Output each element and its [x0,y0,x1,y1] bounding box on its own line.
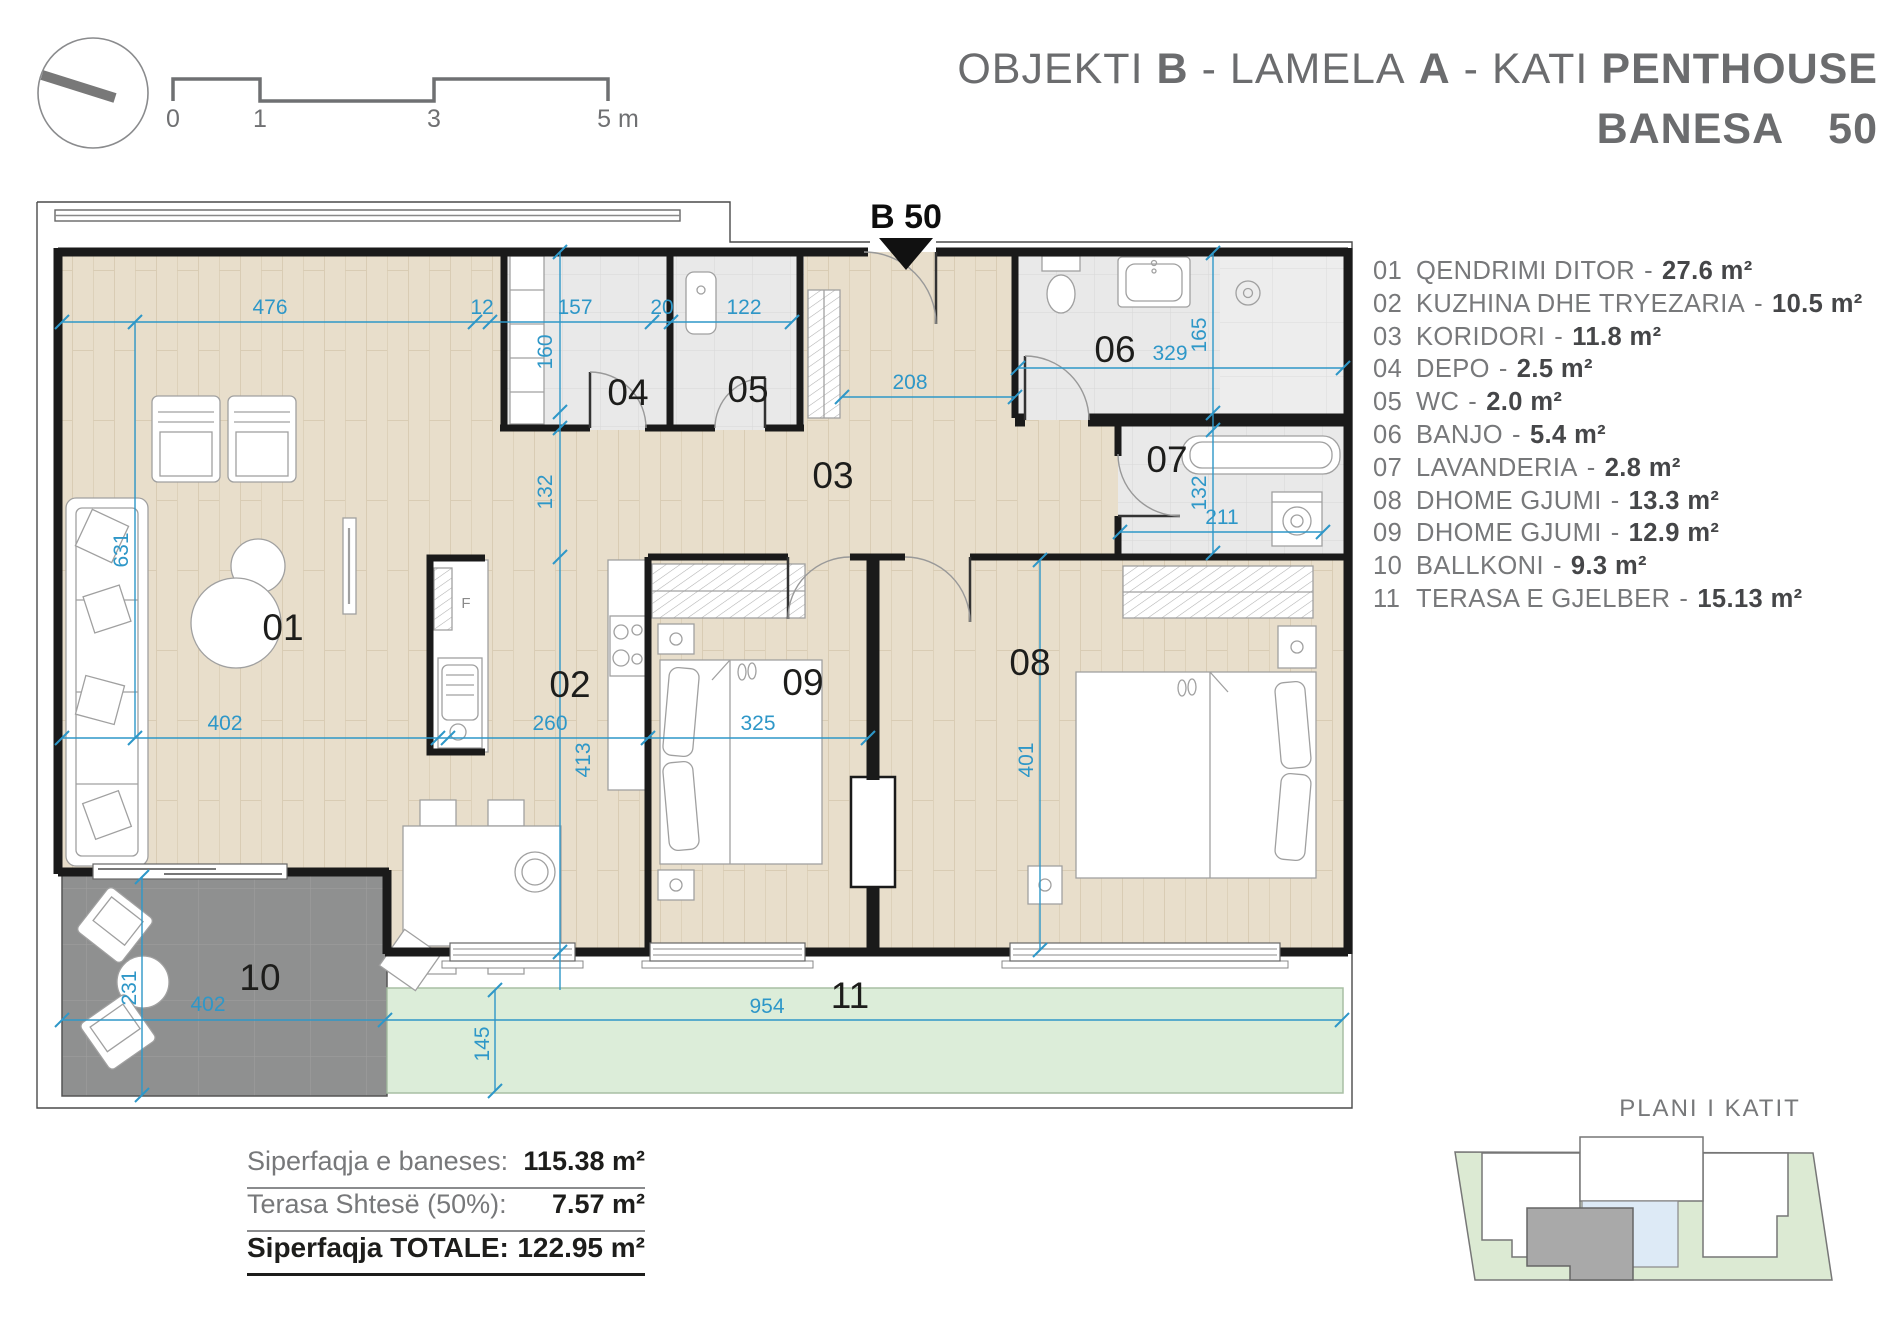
kitchen-window [442,943,583,968]
legend-item-10: 10BALLKONI-9.3 m² [1373,552,1863,585]
title-word: KATI [1492,40,1588,98]
legend-name: KORIDORI [1416,323,1545,352]
legend-sep: - [1553,552,1562,581]
total-label: Terasa Shtesë (50%): [247,1189,507,1220]
legend-area: 13.3 m² [1629,487,1720,516]
dim-132-corridor: 132 [534,474,557,509]
entrance-marker-label: B 50 [870,198,942,236]
legend-name: KUZHINA DHE TRYEZARIA [1416,290,1745,319]
kitchen-unit [430,558,488,752]
dim-402-living: 402 [207,712,242,735]
dim-631: 631 [110,532,133,567]
total-value: 122.95 m² [517,1232,645,1264]
armchair [228,396,296,482]
legend-num: 06 [1373,421,1416,450]
shower-tile-floor [1220,252,1348,420]
legend-name: DEPO [1416,355,1490,384]
unit-number: 50 [1828,100,1878,158]
legend-num: 02 [1373,290,1416,319]
dim-160: 160 [534,334,557,369]
legend-num: 10 [1373,552,1416,581]
legend-num: 05 [1373,388,1416,417]
bedroom08-window [1002,943,1288,968]
wardrobe [652,564,805,618]
legend-item-09: 09DHOME GJUMI-12.9 m² [1373,519,1863,552]
legend-sep: - [1468,388,1477,417]
room-label-10: 10 [239,957,280,998]
total-label: Siperfaqja TOTALE: [247,1232,509,1264]
dim-165: 165 [1188,317,1211,352]
area-totals: Siperfaqja e baneses: 115.38 m² Terasa S… [247,1146,645,1276]
legend-name: WC [1416,388,1459,417]
nightstand [658,870,694,900]
legend-area: 2.0 m² [1486,388,1562,417]
legend-area: 9.3 m² [1571,552,1647,581]
room-label-07: 07 [1146,439,1187,480]
legend-sep: - [1611,519,1620,548]
fridge-label: F [461,595,470,612]
tv-board [343,518,356,614]
legend-sep: - [1644,257,1653,286]
key-plan-building-right [1703,1153,1788,1257]
title-word-bold: A [1419,40,1451,98]
dim-145: 145 [471,1026,494,1061]
scale-bar: 0 1 3 5 m [150,55,670,135]
key-plan-building-top [1580,1137,1703,1201]
legend-name: BANJO [1416,421,1503,450]
dim-329: 329 [1152,342,1187,365]
legend-area: 12.9 m² [1629,519,1720,548]
armchair [152,396,220,482]
scale-label-5m: 5 m [597,105,639,133]
dim-12: 12 [470,296,493,319]
legend-num: 07 [1373,454,1416,483]
entry-closet [808,290,840,418]
legend-sep: - [1754,290,1763,319]
bed [1076,672,1316,878]
dim-401: 401 [1015,742,1038,777]
dim-211: 211 [1205,506,1238,529]
legend-name: QENDRIMI DITOR [1416,257,1635,286]
legend-item-05: 05WC-2.0 m² [1373,388,1863,421]
legend-item-03: 03KORIDORI-11.8 m² [1373,323,1863,356]
dim-20: 20 [650,296,673,319]
unit-label: BANESA [1597,100,1785,158]
dim-954: 954 [749,995,784,1018]
room-label-01: 01 [262,607,303,648]
stove-counter [608,560,648,790]
legend-num: 09 [1373,519,1416,548]
legend-name: LAVANDERIA [1416,454,1578,483]
room-label-11: 11 [831,975,869,1016]
scale-label-1: 1 [253,105,267,133]
dim-402-balcony: 402 [190,993,225,1016]
legend-area: 11.8 m² [1572,323,1661,352]
drawing-title: OBJEKTI B - LAMELA A - KATI PENTHOUSE BA… [957,40,1878,158]
nightstand [1028,866,1062,904]
room-label-08: 08 [1009,642,1050,683]
legend-area: 27.6 m² [1662,257,1753,286]
legend-area: 2.8 m² [1605,454,1681,483]
key-plan-drawing [1440,1128,1860,1298]
legend-num: 08 [1373,487,1416,516]
dim-476: 476 [252,296,287,319]
dim-231: 231 [118,970,141,1005]
legend-item-11: 11TERASA E GJELBER-15.13 m² [1373,585,1863,618]
legend-item-02: 02KUZHINA DHE TRYEZARIA-10.5 m² [1373,290,1863,323]
title-dash: - [1202,40,1217,98]
legend-item-07: 07LAVANDERIA-2.8 m² [1373,454,1863,487]
room-label-06: 06 [1094,329,1135,370]
title-word: LAMELA [1230,40,1406,98]
dim-157: 157 [557,296,592,319]
legend-name: BALLKONI [1416,552,1544,581]
legend-num: 11 [1373,585,1416,614]
total-row-grand: Siperfaqja TOTALE: 122.95 m² [247,1232,645,1276]
dim-325: 325 [740,712,775,735]
total-row-apartment: Siperfaqja e baneses: 115.38 m² [247,1146,645,1189]
room-label-02: 02 [549,664,590,705]
legend-item-06: 06BANJO-5.4 m² [1373,421,1863,454]
washing-machine [1272,492,1322,546]
legend-area: 15.13 m² [1697,585,1802,614]
nightstand [658,624,694,654]
title-word-bold: B [1157,40,1189,98]
legend-sep: - [1512,421,1521,450]
floor-plan-drawing: 476 12 157 20 122 160 132 208 329 165 13… [30,160,1360,1120]
title-line-2: BANESA 50 [957,100,1878,158]
legend-name: DHOME GJUMI [1416,487,1602,516]
floor-plan-page: 0 1 3 5 m OBJEKTI B - LAMELA A - KATI PE… [0,0,1900,1343]
room-legend: 01QENDRIMI DITOR-27.6 m² 02KUZHINA DHE T… [1373,257,1863,618]
legend-area: 5.4 m² [1530,421,1606,450]
legend-name: DHOME GJUMI [1416,519,1602,548]
dim-208: 208 [892,371,927,394]
dim-122: 122 [726,296,761,319]
title-word: OBJEKTI [957,40,1143,98]
room-label-03: 03 [812,455,853,496]
bedroom09-window [642,943,813,968]
total-value: 115.38 m² [523,1146,645,1177]
legend-num: 04 [1373,355,1416,384]
legend-item-08: 08DHOME GJUMI-13.3 m² [1373,487,1863,520]
legend-sep: - [1611,487,1620,516]
dim-260: 260 [532,712,567,735]
total-label: Siperfaqja e baneses: [247,1146,508,1177]
legend-area: 2.5 m² [1517,355,1593,384]
wc-basin [686,272,716,334]
title-dash: - [1464,40,1479,98]
wall-niche [851,777,895,887]
legend-item-04: 04DEPO-2.5 m² [1373,355,1863,388]
room-label-05: 05 [727,369,768,410]
total-value: 7.57 m² [552,1189,645,1220]
legend-sep: - [1499,355,1508,384]
legend-sep: - [1554,323,1563,352]
dim-413: 413 [572,742,595,777]
legend-num: 01 [1373,257,1416,286]
legend-area: 10.5 m² [1772,290,1863,319]
room-label-04: 04 [607,372,648,413]
total-row-terrace: Terasa Shtesë (50%): 7.57 m² [247,1189,645,1232]
legend-num: 03 [1373,323,1416,352]
legend-sep: - [1679,585,1688,614]
title-line-1: OBJEKTI B - LAMELA A - KATI PENTHOUSE [957,40,1878,98]
room-label-09: 09 [782,662,823,703]
legend-sep: - [1587,454,1596,483]
scale-label-3: 3 [427,105,441,133]
scale-label-0: 0 [166,105,180,133]
north-compass-icon [35,33,151,153]
key-plan-title: PLANI I KATIT [1580,1095,1840,1123]
nightstand [1278,626,1316,668]
bathtub [1182,436,1340,474]
bathroom-sink [1118,257,1190,307]
wardrobe [1123,566,1313,618]
balcony-sliding-door [93,864,287,879]
legend-name: TERASA E GJELBER [1416,585,1670,614]
legend-item-01: 01QENDRIMI DITOR-27.6 m² [1373,257,1863,290]
title-word-bold: PENTHOUSE [1601,40,1878,98]
